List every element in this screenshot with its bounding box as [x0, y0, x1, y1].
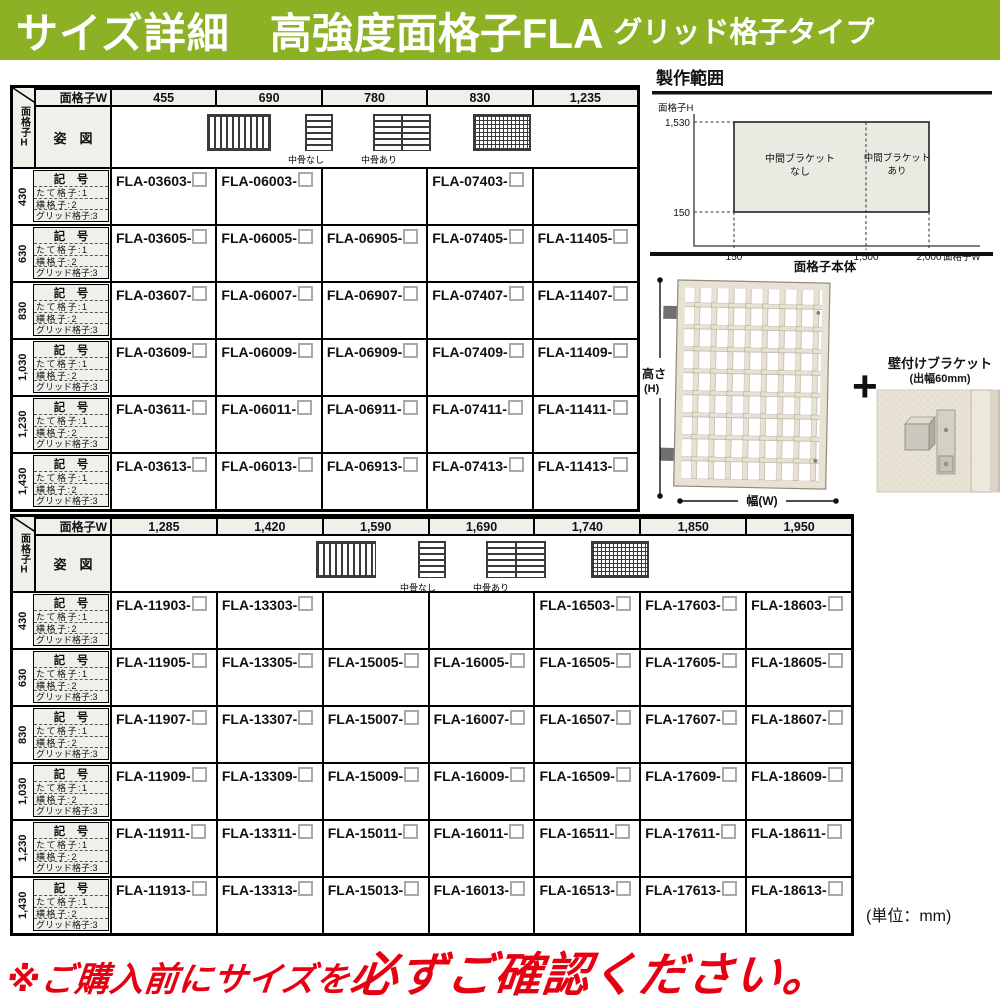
- product-code-cell: FLA-06911-: [321, 397, 426, 452]
- product-code-cell: FLA-03613-: [110, 454, 215, 509]
- color-code-checkbox: [192, 596, 207, 611]
- product-code-cell: FLA-16009-: [428, 764, 534, 819]
- height-dimension: 高さ (H): [642, 277, 666, 499]
- grille-height-axis-label: 面格子H: [13, 88, 36, 167]
- row-label-box: 記 号たて格子:1横格子:2グリッド格子:3: [33, 284, 109, 336]
- color-code-checkbox: [298, 767, 313, 782]
- horizontal-lattice-type-label: 横格子:2: [34, 793, 108, 805]
- row-height-value: 830: [13, 707, 33, 762]
- product-code-cell: FLA-11409-: [532, 340, 637, 395]
- color-code-checkbox: [298, 710, 313, 725]
- code-heading: 記 号: [34, 652, 108, 667]
- product-code: FLA-11405-: [538, 230, 613, 246]
- product-code-cell: FLA-16005-: [428, 650, 534, 705]
- code-heading: 記 号: [34, 709, 108, 724]
- product-code: FLA-11411-: [538, 401, 612, 417]
- row-label-box: 記 号たて格子:1横格子:2グリッド格子:3: [33, 227, 109, 279]
- color-code-checkbox: [613, 343, 628, 358]
- color-code-checkbox: [192, 286, 207, 301]
- vertical-lattice-icon: [207, 114, 271, 151]
- width-column-header: 1,690: [428, 519, 534, 534]
- color-code-checkbox: [828, 596, 843, 611]
- product-code-cell: FLA-17611-: [639, 821, 745, 876]
- color-code-checkbox: [404, 767, 419, 782]
- corner-diagonal: [13, 88, 36, 104]
- product-code-cell: FLA-16503-: [533, 593, 639, 648]
- legend-no-midrib: 中骨なし: [400, 581, 436, 594]
- row-height-value: 630: [13, 226, 33, 281]
- warning-lead: ※ご購入前にサイズを: [5, 952, 353, 1000]
- color-code-checkbox: [297, 400, 312, 415]
- color-code-checkbox: [508, 400, 523, 415]
- size-table-large-widths: 面格子H面格子W1,2851,4201,5901,6901,7401,8501,…: [10, 514, 854, 936]
- product-code-cell: FLA-03605-: [110, 226, 215, 281]
- row-height-value: 1,430: [13, 454, 33, 509]
- product-code-cell: FLA-13305-: [216, 650, 322, 705]
- product-code: FLA-16513-: [539, 882, 614, 898]
- color-code-checkbox: [613, 457, 628, 472]
- warning-strong: 必ずご確認ください: [347, 936, 786, 1000]
- product-code-cell: FLA-11907-: [110, 707, 216, 762]
- color-code-checkbox: [298, 457, 313, 472]
- product-code: FLA-06011-: [221, 401, 296, 417]
- color-code-checkbox: [828, 653, 843, 668]
- zone-with-bracket-line2: あり: [887, 166, 906, 177]
- bracket-block: [905, 424, 929, 450]
- color-code-checkbox: [509, 229, 524, 244]
- row-height-value: 1,230: [13, 397, 33, 452]
- product-code-cell: FLA-16011-: [428, 821, 534, 876]
- product-code: FLA-15009-: [328, 768, 403, 784]
- product-code-cell: FLA-11909-: [110, 764, 216, 819]
- product-code-cell: FLA-06003-: [215, 169, 320, 224]
- color-code-checkbox: [403, 286, 418, 301]
- vertical-lattice-type-label: たて格子:1: [34, 186, 108, 198]
- range-y-tick-top: 1,530: [665, 118, 690, 129]
- product-code-cell: FLA-07403-: [426, 169, 531, 224]
- color-code-checkbox: [403, 343, 418, 358]
- color-code-checkbox: [403, 229, 418, 244]
- product-code-cell: FLA-18613-: [745, 878, 851, 933]
- width-column-header: 1,590: [322, 519, 428, 534]
- color-code-checkbox: [192, 457, 207, 472]
- product-code-cell: FLA-16507-: [533, 707, 639, 762]
- row-label-box: 記 号たて格子:1横格子:2グリッド格子:3: [33, 398, 109, 450]
- product-code: FLA-13305-: [222, 654, 297, 670]
- color-code-checkbox: [404, 653, 419, 668]
- horizontal-lattice-type-label: 横格子:2: [34, 312, 108, 324]
- product-code: FLA-17605-: [645, 654, 720, 670]
- unit-note: (単位：mm): [866, 902, 951, 926]
- row-label-cell: 430記 号たて格子:1横格子:2グリッド格子:3: [13, 169, 110, 224]
- color-code-checkbox: [403, 400, 418, 415]
- color-code-checkbox: [827, 824, 842, 839]
- product-code-cell: FLA-13307-: [216, 707, 322, 762]
- row-label-box: 記 号たて格子:1横格子:2グリッド格子:3: [33, 651, 109, 703]
- product-code-cell: FLA-13309-: [216, 764, 322, 819]
- product-code-cell: FLA-16013-: [428, 878, 534, 933]
- width-column-header: 830: [426, 90, 531, 105]
- pose-figure-area: 中骨なし中骨あり: [110, 107, 637, 167]
- color-code-checkbox: [616, 710, 631, 725]
- product-name: 高強度面格子FLA: [270, 0, 604, 61]
- table-row: 630記 号たて格子:1横格子:2グリッド格子:3FLA-03605-FLA-0…: [13, 224, 637, 281]
- product-code: FLA-11407-: [538, 287, 613, 303]
- row-label-box: 記 号たて格子:1横格子:2グリッド格子:3: [33, 765, 109, 817]
- product-code: FLA-11909-: [116, 768, 191, 784]
- product-code-cell: FLA-03603-: [110, 169, 215, 224]
- product-code-cell: FLA-17607-: [639, 707, 745, 762]
- product-code: FLA-07405-: [432, 230, 507, 246]
- color-code-checkbox: [298, 596, 313, 611]
- grid-lattice-type-label: グリッド格子:3: [34, 323, 108, 335]
- grille-height-axis-text: 面格子H: [19, 106, 29, 149]
- product-code: FLA-17609-: [645, 768, 720, 784]
- product-code-cell: FLA-11911-: [110, 821, 216, 876]
- product-code: FLA-03605-: [116, 230, 191, 246]
- horizontal-lattice-icon: [418, 541, 446, 578]
- color-code-checkbox: [298, 653, 313, 668]
- color-code-checkbox: [192, 710, 207, 725]
- wall-bracket-sub: (出幅60mm): [909, 371, 970, 385]
- product-code-cell: [428, 593, 534, 648]
- page-title-banner: サイズ詳細 高強度面格子FLA グリッド格子タイプ: [0, 0, 1000, 60]
- product-code: FLA-11903-: [116, 597, 191, 613]
- product-code-cell: FLA-17605-: [639, 650, 745, 705]
- product-code: FLA-15013-: [328, 882, 403, 898]
- table-header-row: 面格子W4556907808301,235: [13, 88, 637, 105]
- table-row: 430記 号たて格子:1横格子:2グリッド格子:3FLA-11903-FLA-1…: [13, 591, 851, 648]
- grid-lattice-icon: [591, 541, 649, 578]
- product-code: FLA-18607-: [751, 711, 826, 727]
- color-code-checkbox: [509, 457, 524, 472]
- color-code-checkbox: [192, 881, 207, 896]
- product-code: FLA-16011-: [434, 825, 509, 841]
- product-code: FLA-13309-: [222, 768, 297, 784]
- product-code: FLA-17607-: [645, 711, 720, 727]
- product-code: FLA-07413-: [432, 458, 507, 474]
- width-column-header: 1,740: [533, 519, 639, 534]
- horizontal-lattice-type-label: 横格子:2: [34, 198, 108, 210]
- product-code: FLA-18609-: [751, 768, 826, 784]
- color-code-checkbox: [192, 400, 207, 415]
- grid-lattice-type-label: グリッド格子:3: [34, 266, 108, 278]
- product-code: FLA-07411-: [432, 401, 507, 417]
- wall-bracket-title: 壁付けブラケット: [888, 356, 992, 371]
- plus-sign: +: [852, 362, 878, 411]
- row-label-cell: 830記 号たて格子:1横格子:2グリッド格子:3: [13, 283, 110, 338]
- pose-figure-row: 姿 図中骨なし中骨あり: [13, 105, 637, 167]
- grid-lattice-pattern: [674, 280, 830, 489]
- color-code-checkbox: [828, 881, 843, 896]
- legend-no-midrib: 中骨なし: [288, 153, 324, 166]
- product-code-cell: [321, 169, 426, 224]
- color-code-checkbox: [510, 710, 525, 725]
- width-column-header: 455: [110, 90, 215, 105]
- product-code-cell: FLA-18609-: [745, 764, 851, 819]
- product-code: FLA-16005-: [434, 654, 509, 670]
- height-label: 高さ: [642, 366, 666, 381]
- zone-with-bracket-line1: 中間ブラケット: [864, 152, 931, 164]
- product-code: FLA-13307-: [222, 711, 297, 727]
- width-column-header: 1,850: [639, 519, 745, 534]
- zone-no-bracket-line1: 中間ブラケット: [765, 152, 835, 165]
- product-code-cell: FLA-11405-: [532, 226, 637, 281]
- legend-with-midrib: 中骨あり: [473, 581, 509, 594]
- product-illustration: 面格子本体 高さ (H) 幅(W) +: [640, 258, 1000, 508]
- product-code: FLA-18605-: [751, 654, 826, 670]
- color-code-checkbox: [192, 767, 207, 782]
- color-code-checkbox: [298, 881, 313, 896]
- grid-lattice-type-label: グリッド格子:3: [34, 861, 108, 873]
- product-code: FLA-13303-: [222, 597, 297, 613]
- color-code-checkbox: [510, 767, 525, 782]
- product-code: FLA-16009-: [434, 768, 509, 784]
- color-code-checkbox: [403, 457, 418, 472]
- code-heading: 記 号: [34, 823, 108, 838]
- product-code-cell: FLA-11407-: [532, 283, 637, 338]
- product-code: FLA-16013-: [434, 882, 509, 898]
- product-code-cell: FLA-03611-: [110, 397, 215, 452]
- vertical-lattice-icon: [316, 541, 376, 578]
- corner-diagonal: [13, 517, 36, 533]
- color-code-checkbox: [722, 596, 737, 611]
- product-code-cell: FLA-17613-: [639, 878, 745, 933]
- vertical-lattice-type-label: たて格子:1: [34, 781, 108, 793]
- product-code: FLA-13311-: [222, 825, 297, 841]
- pose-figure-row: 姿 図中骨なし中骨あり: [13, 534, 851, 591]
- grid-lattice-type-label: グリッド格子:3: [34, 437, 108, 449]
- product-code-cell: FLA-07405-: [426, 226, 531, 281]
- grid-lattice-type-label: グリッド格子:3: [34, 209, 108, 221]
- color-code-checkbox: [613, 400, 628, 415]
- product-code: FLA-07409-: [432, 344, 507, 360]
- width-column-header: 1,950: [745, 519, 851, 534]
- product-code: FLA-11907-: [116, 711, 191, 727]
- color-code-checkbox: [509, 343, 524, 358]
- product-code: FLA-18611-: [751, 825, 826, 841]
- row-label-cell: 1,030記 号たて格子:1横格子:2グリッド格子:3: [13, 340, 110, 395]
- product-code-cell: FLA-06909-: [321, 340, 426, 395]
- width-label: 幅(W): [746, 493, 777, 508]
- product-code-cell: FLA-15009-: [322, 764, 428, 819]
- width-column-header: 1,420: [216, 519, 322, 534]
- product-code-cell: FLA-17609-: [639, 764, 745, 819]
- row-height-value: 430: [13, 169, 33, 224]
- product-code: FLA-11913-: [116, 882, 191, 898]
- code-heading: 記 号: [34, 456, 108, 471]
- width-column-header: 1,235: [532, 90, 637, 105]
- vertical-lattice-type-label: たて格子:1: [34, 724, 108, 736]
- product-code-cell: FLA-17603-: [639, 593, 745, 648]
- product-code: FLA-06909-: [327, 344, 402, 360]
- color-code-checkbox: [192, 343, 207, 358]
- product-code-cell: FLA-16509-: [533, 764, 639, 819]
- grille-height-axis-label: 面格子H: [13, 517, 36, 591]
- product-code-cell: [532, 169, 637, 224]
- product-code-cell: FLA-18603-: [745, 593, 851, 648]
- product-code-cell: FLA-11913-: [110, 878, 216, 933]
- horizontal-lattice-type-label: 横格子:2: [34, 850, 108, 862]
- table-row: 430記 号たて格子:1横格子:2グリッド格子:3FLA-03603-FLA-0…: [13, 167, 637, 224]
- row-label-box: 記 号たて格子:1横格子:2グリッド格子:3: [33, 822, 109, 874]
- row-height-value: 1,430: [13, 878, 33, 933]
- color-code-checkbox: [298, 286, 313, 301]
- vertical-lattice-type-label: たて格子:1: [34, 243, 108, 255]
- color-code-checkbox: [509, 172, 524, 187]
- product-code: FLA-17613-: [645, 882, 720, 898]
- vertical-lattice-type-label: たて格子:1: [34, 610, 108, 622]
- product-code-cell: FLA-03609-: [110, 340, 215, 395]
- product-code-cell: FLA-06907-: [321, 283, 426, 338]
- color-code-checkbox: [828, 710, 843, 725]
- code-heading: 記 号: [34, 228, 108, 243]
- row-label-box: 記 号たて格子:1横格子:2グリッド格子:3: [33, 594, 109, 646]
- color-code-checkbox: [722, 710, 737, 725]
- product-code: FLA-03613-: [116, 458, 191, 474]
- color-code-checkbox: [613, 286, 628, 301]
- product-code: FLA-06907-: [327, 287, 402, 303]
- product-code-cell: FLA-06913-: [321, 454, 426, 509]
- product-code-cell: FLA-15013-: [322, 878, 428, 933]
- size-table-small-widths: 面格子H面格子W4556907808301,235姿 図中骨なし中骨あり430記…: [10, 85, 640, 512]
- width-column-header: 1,285: [110, 519, 216, 534]
- row-label-cell: 630記 号たて格子:1横格子:2グリッド格子:3: [13, 226, 110, 281]
- color-code-checkbox: [298, 172, 313, 187]
- row-label-box: 記 号たて格子:1横格子:2グリッド格子:3: [33, 708, 109, 760]
- color-code-checkbox: [616, 767, 631, 782]
- table-row: 1,230記 号たて格子:1横格子:2グリッド格子:3FLA-03611-FLA…: [13, 395, 637, 452]
- table-row: 1,030記 号たて格子:1横格子:2グリッド格子:3FLA-03609-FLA…: [13, 338, 637, 395]
- grid-lattice-type-label: グリッド格子:3: [34, 918, 108, 930]
- product-code: FLA-06911-: [327, 401, 402, 417]
- horizontal-lattice-icon: [305, 114, 333, 151]
- row-height-value: 1,230: [13, 821, 33, 876]
- product-code: FLA-11905-: [116, 654, 191, 670]
- product-code: FLA-16511-: [539, 825, 614, 841]
- product-code-cell: FLA-07411-: [426, 397, 531, 452]
- height-sub-label: (H): [644, 383, 660, 395]
- horizontal-lattice-type-label: 横格子:2: [34, 483, 108, 495]
- vertical-lattice-type-label: たて格子:1: [34, 895, 108, 907]
- wall-bracket-photo: [877, 390, 1000, 492]
- table-row: 830記 号たて格子:1横格子:2グリッド格子:3FLA-03607-FLA-0…: [13, 281, 637, 338]
- grille-panel-drawing: [660, 280, 830, 489]
- product-code: FLA-16505-: [539, 654, 614, 670]
- color-code-checkbox: [616, 881, 631, 896]
- color-code-checkbox: [722, 881, 737, 896]
- product-code-cell: FLA-15007-: [322, 707, 428, 762]
- code-heading: 記 号: [34, 766, 108, 781]
- row-label-cell: 1,230記 号たて格子:1横格子:2グリッド格子:3: [13, 821, 110, 876]
- color-code-checkbox: [191, 824, 206, 839]
- grid-lattice-icon: [473, 114, 531, 151]
- vertical-lattice-type-label: たて格子:1: [34, 414, 108, 426]
- grid-lattice-type-label: グリッド格子:3: [34, 747, 108, 759]
- product-code: FLA-07407-: [432, 287, 507, 303]
- color-code-checkbox: [404, 710, 419, 725]
- warning-period: 。: [779, 936, 833, 1000]
- code-heading: 記 号: [34, 342, 108, 357]
- product-code: FLA-18613-: [751, 882, 826, 898]
- horizontal-lattice-midrib-icon: [373, 114, 431, 151]
- color-code-checkbox: [509, 286, 524, 301]
- color-code-checkbox: [510, 653, 525, 668]
- width-column-header: 690: [215, 90, 320, 105]
- product-code: FLA-16507-: [539, 711, 614, 727]
- product-code-cell: FLA-06905-: [321, 226, 426, 281]
- product-code: FLA-03611-: [116, 401, 191, 417]
- row-label-box: 記 号たて格子:1横格子:2グリッド格子:3: [33, 455, 109, 507]
- color-code-checkbox: [192, 653, 207, 668]
- color-code-checkbox: [192, 172, 207, 187]
- product-code: FLA-07403-: [432, 173, 507, 189]
- product-code-cell: FLA-11905-: [110, 650, 216, 705]
- color-code-checkbox: [192, 229, 207, 244]
- color-code-checkbox: [722, 767, 737, 782]
- horizontal-lattice-type-label: 横格子:2: [34, 369, 108, 381]
- product-code: FLA-06007-: [221, 287, 296, 303]
- title-underline: [652, 91, 992, 95]
- section-divider: [650, 252, 993, 256]
- product-code-cell: FLA-13313-: [216, 878, 322, 933]
- vertical-lattice-type-label: たて格子:1: [34, 471, 108, 483]
- color-code-checkbox: [509, 824, 524, 839]
- product-code-cell: FLA-15005-: [322, 650, 428, 705]
- product-code-cell: FLA-07409-: [426, 340, 531, 395]
- product-code: FLA-03607-: [116, 287, 191, 303]
- row-label-cell: 430記 号たて格子:1横格子:2グリッド格子:3: [13, 593, 110, 648]
- product-code-cell: FLA-16511-: [533, 821, 639, 876]
- product-code-cell: FLA-13303-: [216, 593, 322, 648]
- row-label-cell: 1,230記 号たて格子:1横格子:2グリッド格子:3: [13, 397, 110, 452]
- row-label-cell: 1,030記 号たて格子:1横格子:2グリッド格子:3: [13, 764, 110, 819]
- product-code: FLA-06009-: [221, 344, 296, 360]
- product-code-cell: FLA-16513-: [533, 878, 639, 933]
- color-code-checkbox: [721, 824, 736, 839]
- product-code-cell: FLA-16505-: [533, 650, 639, 705]
- product-code-cell: FLA-06005-: [215, 226, 320, 281]
- horizontal-lattice-type-label: 横格子:2: [34, 622, 108, 634]
- code-heading: 記 号: [34, 595, 108, 610]
- product-code: FLA-06005-: [221, 230, 296, 246]
- row-height-value: 630: [13, 650, 33, 705]
- color-code-checkbox: [613, 229, 628, 244]
- product-code: FLA-11409-: [538, 344, 613, 360]
- product-code-cell: [322, 593, 428, 648]
- product-code: FLA-03609-: [116, 344, 191, 360]
- table-row: 1,030記 号たて格子:1横格子:2グリッド格子:3FLA-11909-FLA…: [13, 762, 851, 819]
- table-row: 1,430記 号たて格子:1横格子:2グリッド格子:3FLA-11913-FLA…: [13, 876, 851, 933]
- color-code-checkbox: [615, 824, 630, 839]
- zone-no-bracket-line2: なし: [790, 166, 810, 178]
- table-row: 630記 号たて格子:1横格子:2グリッド格子:3FLA-11905-FLA-1…: [13, 648, 851, 705]
- table-row: 830記 号たて格子:1横格子:2グリッド格子:3FLA-11907-FLA-1…: [13, 705, 851, 762]
- product-code: FLA-15005-: [328, 654, 403, 670]
- vertical-lattice-type-label: たて格子:1: [34, 357, 108, 369]
- grid-lattice-type-label: グリッド格子:3: [34, 690, 108, 702]
- product-code-cell: FLA-11411-: [532, 397, 637, 452]
- grid-lattice-type-label: グリッド格子:3: [34, 804, 108, 816]
- product-code-cell: FLA-11413-: [532, 454, 637, 509]
- range-y-tick-bottom: 150: [673, 208, 690, 219]
- row-height-value: 830: [13, 283, 33, 338]
- product-code-cell: FLA-13311-: [216, 821, 322, 876]
- table-row: 1,230記 号たて格子:1横格子:2グリッド格子:3FLA-11911-FLA…: [13, 819, 851, 876]
- product-code: FLA-06905-: [327, 230, 402, 246]
- production-range-chart: 製作範囲 面格子H 1,530 150 中間ブラケット なし 中間ブラケット あ…: [650, 62, 995, 264]
- color-code-checkbox: [298, 229, 313, 244]
